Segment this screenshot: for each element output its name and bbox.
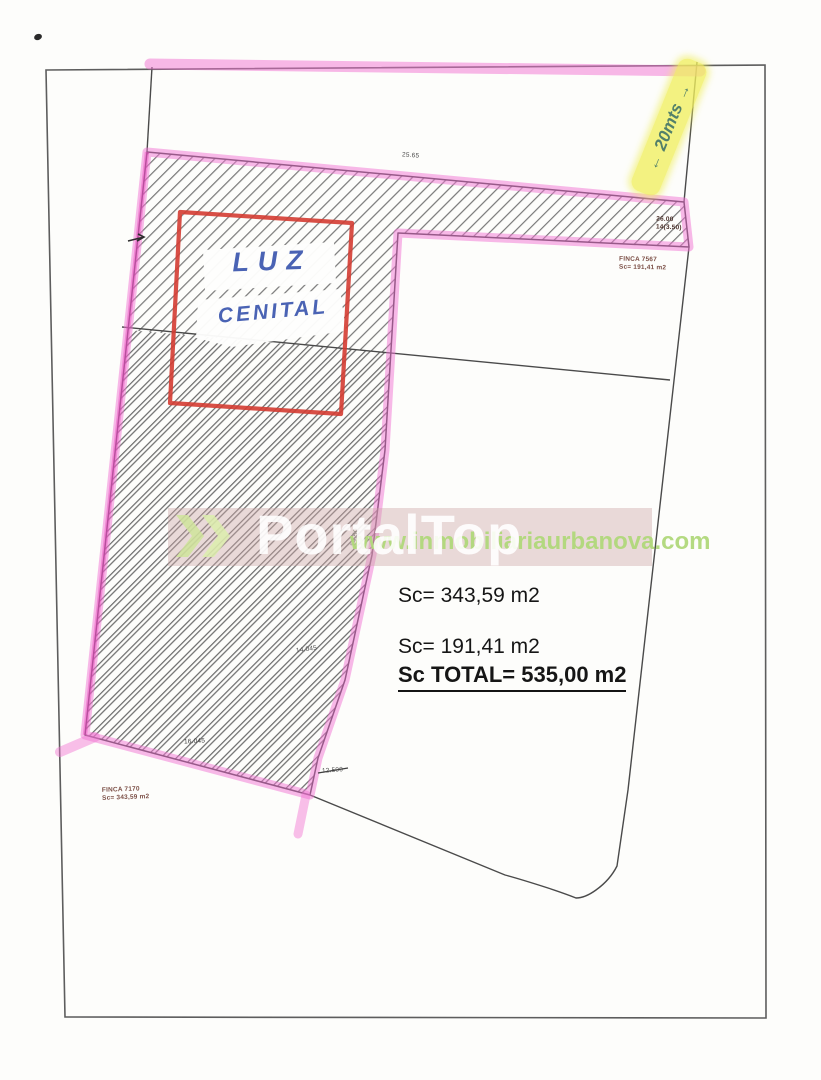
dimension-strip-right-line2: 14(3.50) (656, 224, 682, 233)
finca-7567-label: FINCA 7567 Sc= 191,41 m2 (619, 256, 667, 273)
watermark-logo-icon (172, 511, 250, 561)
scanned-plan-page: ← 20mts → LUZ CENITAL FINCA 7567 Sc= 191… (0, 0, 821, 1080)
dimension-bottom-inner: 16.045 (184, 737, 205, 745)
watermark-brand: PortalTop (256, 502, 522, 567)
area-summary: Sc= 343,59 m2 Sc= 191,41 m2 Sc TOTAL= 53… (398, 584, 626, 692)
boundary-line-top-left (147, 67, 152, 152)
pink-highlight-corner-bottom (298, 795, 306, 834)
arrow-start-icon: ← (644, 152, 665, 172)
finca-7170-label: FINCA 7170 Sc= 343,59 m2 (102, 785, 150, 803)
finca-7567-area: Sc= 191,41 m2 (619, 264, 666, 273)
pink-highlight-top-edge (150, 64, 700, 71)
pink-highlight-corner-left (60, 737, 95, 752)
dimension-top-edge: 25.65 (402, 151, 420, 159)
arrow-end-icon: → (673, 82, 694, 102)
dimension-strip-right: 26.00 14(3.50) (656, 216, 682, 234)
area-total: Sc TOTAL= 535,00 m2 (398, 662, 626, 692)
area-sc2: Sc= 191,41 m2 (398, 635, 626, 659)
handwritten-luz-line1: LUZ (211, 244, 332, 279)
ink-speck (33, 33, 43, 41)
finca-7170-area: Sc= 343,59 m2 (102, 793, 149, 803)
dimension-bottom-edge: 12.500 (322, 766, 344, 774)
watermark: www.inmobiliariaurbanova.com PortalTop (168, 508, 652, 566)
area-sc1: Sc= 343,59 m2 (398, 584, 626, 608)
